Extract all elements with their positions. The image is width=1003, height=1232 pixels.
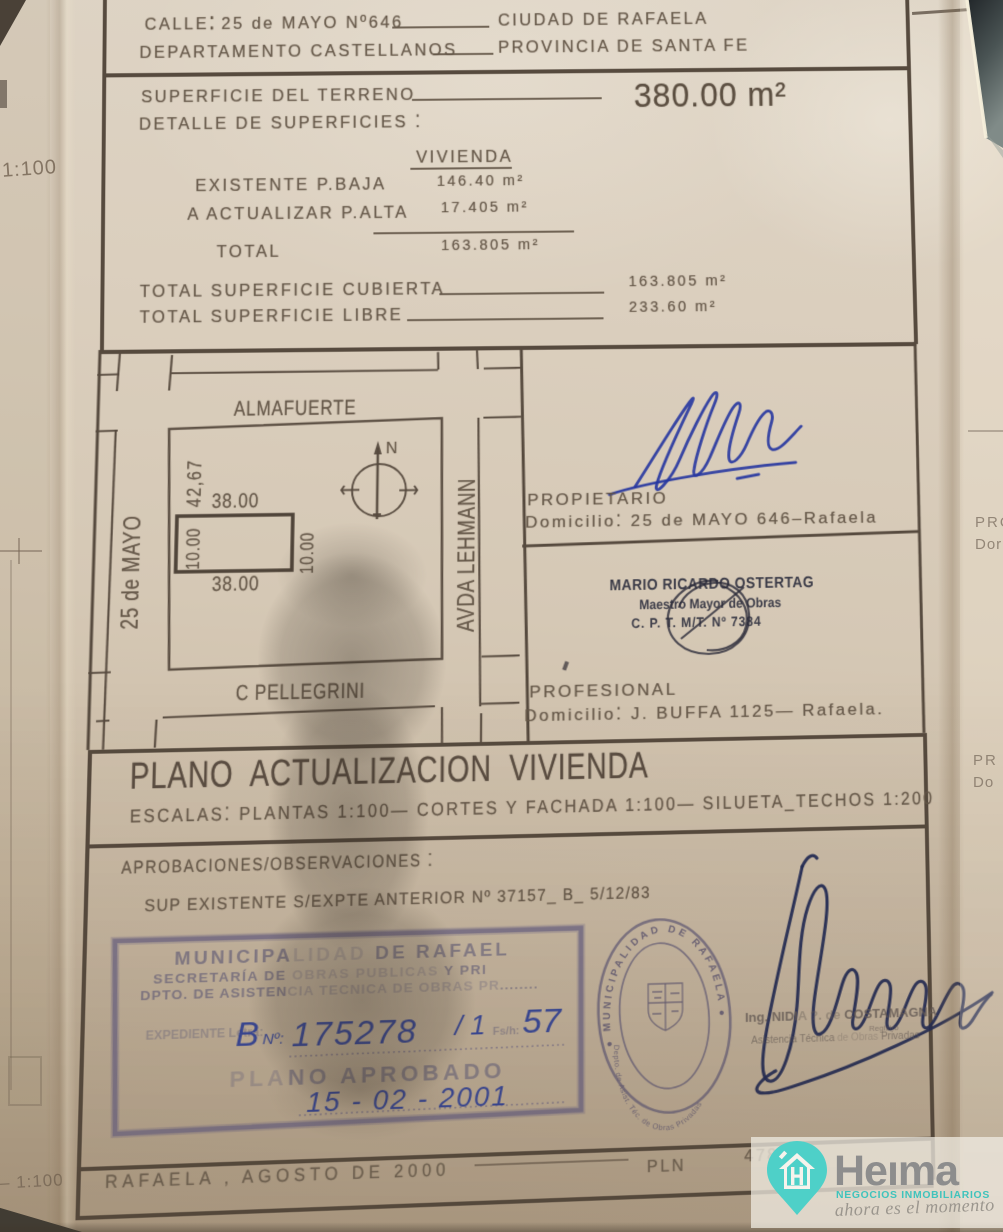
svg-text:ahora es el momento: ahora es el momento xyxy=(834,1194,995,1220)
svg-text:Heıma: Heıma xyxy=(834,1147,960,1195)
